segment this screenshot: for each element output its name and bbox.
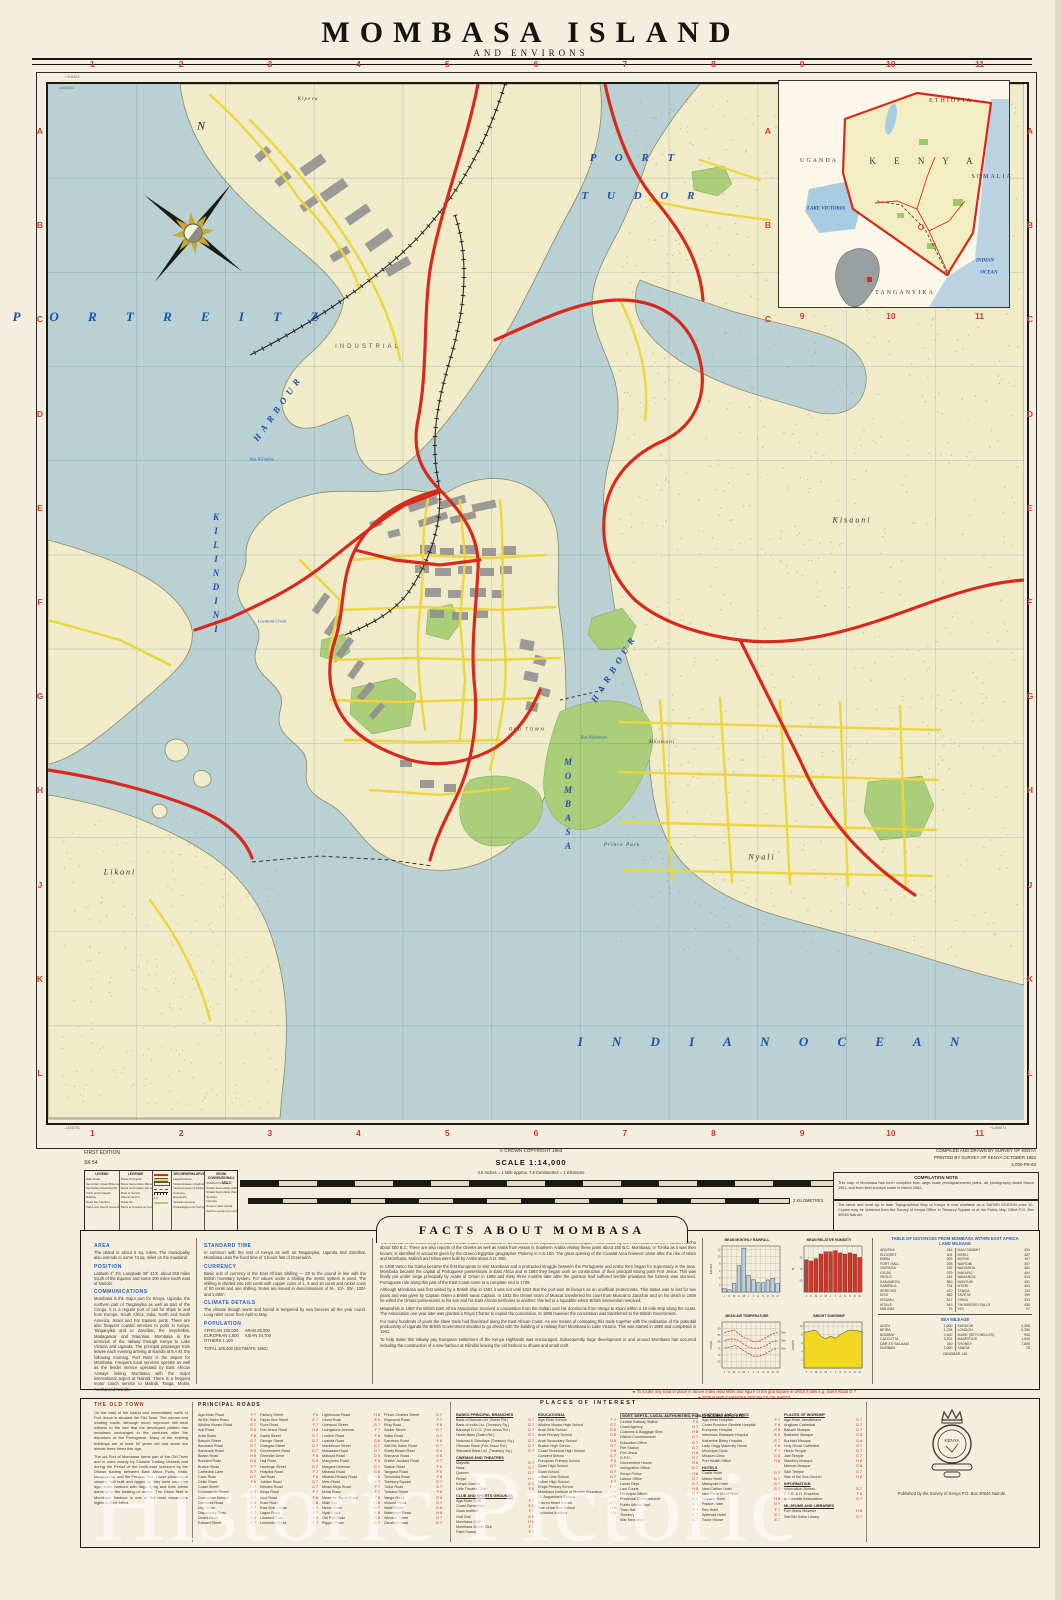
distance-column: ARUSHA244ELDORET404EMBU305FORT HALL258GA… <box>878 1248 955 1312</box>
place-grid-ref: H 8 <box>856 1475 862 1480</box>
facts-currency-body: Basic unit of currency is the East Afric… <box>204 1271 366 1297</box>
compiled-line: COMPILED AND DRAWN BY SURVEY OF KENYA <box>736 1147 1036 1154</box>
svg-text:2: 2 <box>801 1358 803 1362</box>
inset-label: UGANDA <box>800 158 838 164</box>
svg-text:D: D <box>859 1370 861 1374</box>
facts-currency-title: CURRENCY <box>204 1264 366 1270</box>
grid-letter: G <box>1027 691 1034 701</box>
svg-text:M: M <box>743 1294 746 1298</box>
population-total: TOTAL 165,400 (ESTIMATE 1962) <box>204 1346 366 1351</box>
grid-letter: B <box>37 220 43 230</box>
inset-label: OCEAN <box>980 271 997 276</box>
svg-text:S: S <box>844 1294 846 1298</box>
history-paragraph: Meanwhile in 1887 the British East Afric… <box>380 1306 696 1317</box>
grid-letter: J <box>1028 880 1033 890</box>
population-row: ASIAN 34,700 <box>245 1333 271 1338</box>
svg-text:J: J <box>753 1294 755 1298</box>
grid-number: 7 <box>622 1128 627 1138</box>
divider <box>372 1238 373 1384</box>
svg-text:A: A <box>839 1294 841 1298</box>
distance-place: MALINDI <box>880 1307 894 1312</box>
svg-text:12: 12 <box>718 1248 721 1252</box>
building-block <box>502 546 516 555</box>
history-paragraph: Although Mombasa was first visited by a … <box>380 1287 696 1303</box>
chart-title: MEAN MONTHLY RAINFALL <box>708 1238 786 1242</box>
svg-text:10: 10 <box>718 1255 721 1259</box>
grid-letter: C <box>1027 314 1033 324</box>
building-block <box>425 588 441 597</box>
compilation-note-title: COMPILATION NOTE <box>838 1175 1034 1180</box>
legend-item: Parcs et Terrains de Sports <box>121 1205 151 1210</box>
grid-coordinate: -1460001 <box>58 86 74 90</box>
scan-edge-shade <box>1055 0 1062 1600</box>
legend-header: SEGNI CONVENZIONALI <box>206 1172 236 1180</box>
svg-text:A: A <box>839 1370 841 1374</box>
svg-text:INCHES: INCHES <box>709 1264 713 1275</box>
svg-text:N: N <box>854 1294 856 1298</box>
scale-mile-label: MILE <box>222 1180 232 1185</box>
grid-letter: F <box>37 597 42 607</box>
grid-number: 3 <box>267 59 272 69</box>
grid-number: 7 <box>622 59 627 69</box>
svg-text:4: 4 <box>719 1276 721 1280</box>
chart-mean-air-temperature: MEAN AIR TEMPERATURE657075808590Mean Max… <box>708 1314 786 1390</box>
legend-symbol-rail <box>154 1192 168 1195</box>
svg-text:°FAHR.: °FAHR. <box>709 1340 713 1350</box>
grid-letter: D <box>37 409 43 419</box>
svg-text:HOURS: HOURS <box>791 1340 795 1350</box>
red-note-line: ★ FOR NAME CHANGES SEE BACK OF SHEET <box>452 1395 1036 1401</box>
svg-text:70: 70 <box>800 1267 803 1271</box>
distance-place: DURBAN <box>880 1346 895 1351</box>
grid-number: 3 <box>267 1128 272 1138</box>
building-block <box>482 548 496 556</box>
facts-history: The first real news concerning the East … <box>380 1240 696 1350</box>
history-paragraph: For many hundreds of years the slave tra… <box>380 1319 696 1335</box>
inset-label: ETHIOPIA <box>929 98 973 104</box>
legend-symbol-track <box>154 1189 168 1190</box>
grid-letter: L <box>1027 1068 1032 1078</box>
grid-number: 1 <box>90 59 95 69</box>
svg-text:8: 8 <box>801 1333 803 1337</box>
svg-text:80: 80 <box>800 1256 803 1260</box>
facts-col-left: AREA The island is about 5 sq. miles. Th… <box>94 1240 190 1392</box>
inset-label: SOMALIA <box>971 174 1012 180</box>
svg-text:M: M <box>815 1294 818 1298</box>
svg-text:KENYA: KENYA <box>945 1438 960 1443</box>
distance-row: DURBAN2,000 <box>880 1346 953 1351</box>
page-subtitle: AND ENVIRONS <box>0 48 1062 58</box>
old-town-paragraph: On the east of the Island and immediatel… <box>94 1410 188 1451</box>
index-usage-notes: ★ To locate any road or place in above i… <box>452 1389 1036 1400</box>
svg-text:N: N <box>772 1370 774 1374</box>
grid-number: 8 <box>711 59 716 69</box>
grid-letter: E <box>37 503 43 513</box>
svg-text:A: A <box>820 1370 822 1374</box>
legend-symbol <box>154 1182 171 1187</box>
scale-bar-km <box>248 1198 790 1204</box>
copyright-note: © CROWN COPYRIGHT 1963 <box>411 1148 651 1153</box>
distance-place: VOI <box>958 1307 964 1312</box>
grid-letter-inset: B <box>765 220 771 230</box>
kenya-inset-map: ETHIOPIAUGANDAK E N Y ASOMALIATANGANYIKA… <box>778 80 1010 308</box>
building-block <box>444 784 456 792</box>
safari-edition-body: The latest and most up to date Topograph… <box>838 1203 1034 1217</box>
distance-row: MALINDI75 <box>880 1307 953 1312</box>
places-section-title: HOSPITALS AND CLINICS <box>702 1413 780 1417</box>
distance-miles: 75 <box>949 1307 953 1312</box>
publisher-note: Published by the Survey of Kenya P.O. Bo… <box>868 1491 1036 1496</box>
svg-text:J: J <box>748 1370 750 1374</box>
svg-text:M: M <box>733 1294 736 1298</box>
svg-text:J: J <box>748 1294 750 1298</box>
grid-number: 1 <box>90 1128 95 1138</box>
grid-letter: L <box>37 1068 42 1078</box>
printed-line: PRINTED BY SURVEY OF KENYA OCTOBER 1963 <box>736 1154 1036 1161</box>
grid-letter-inset: C <box>765 314 771 324</box>
survey-of-kenya-crest: KENYA <box>920 1408 984 1482</box>
grid-number: 4 <box>356 59 361 69</box>
population-table: AFRICAN 100,000EUROPEAN 4,600OTHERS 1,10… <box>204 1328 366 1344</box>
grid-number: 2 <box>179 59 184 69</box>
svg-text:F: F <box>810 1370 812 1374</box>
grid-letter: B <box>1027 220 1033 230</box>
islet <box>193 770 211 787</box>
places-section-title: EDUCATIONAL <box>538 1413 616 1417</box>
svg-text:6: 6 <box>719 1269 721 1273</box>
grid-number: 10 <box>886 59 895 69</box>
legend-symbol <box>154 1201 171 1206</box>
svg-text:60: 60 <box>800 1279 803 1283</box>
svg-text:6: 6 <box>801 1341 803 1345</box>
legend-header: LÉGENDE <box>121 1172 151 1176</box>
inset-kenya-marker <box>867 277 872 282</box>
svg-text:D: D <box>777 1294 779 1298</box>
svg-text:J: J <box>753 1370 755 1374</box>
scale-bar-miles <box>240 1180 846 1187</box>
grid-letter: F <box>1027 597 1032 607</box>
svg-text:4: 4 <box>801 1349 803 1353</box>
grid-letter: E <box>1027 503 1033 513</box>
divider <box>866 1402 867 1542</box>
grid-number-inset: 9 <box>800 311 805 321</box>
svg-text:85: 85 <box>718 1333 721 1337</box>
grid-letter: C <box>37 314 43 324</box>
svg-text:J: J <box>835 1370 837 1374</box>
legend-item: Parks and Sports Grounds <box>86 1205 118 1210</box>
history-paragraph: The first real news concerning the East … <box>380 1240 696 1261</box>
facts-time-body: In common with the rest of Kenya as well… <box>204 1250 366 1261</box>
svg-text:Mean: Mean <box>782 1339 787 1342</box>
svg-text:F: F <box>728 1294 730 1298</box>
chart-title: MEAN AIR TEMPERATURE <box>708 1314 786 1318</box>
place-grid-ref: G 7 <box>856 1497 862 1502</box>
svg-text:10: 10 <box>800 1324 803 1328</box>
building-block <box>480 568 494 576</box>
facts-banner: FACTS ABOUT MOMBASA <box>376 1216 688 1243</box>
edition-note: FIRST EDITION <box>84 1150 120 1156</box>
svg-text:A: A <box>738 1294 740 1298</box>
grid-number: 6 <box>534 1128 539 1138</box>
svg-text:S: S <box>762 1294 764 1298</box>
compilation-note-body: This map of Mombasa has been compiled fr… <box>838 1181 1034 1191</box>
svg-text:A: A <box>757 1294 759 1298</box>
facts-position-body: Latitude 4° 3'S. Longitude 39° 41'E. abo… <box>94 1271 190 1287</box>
inset-label: K E N Y A <box>869 156 980 166</box>
building-block <box>435 568 451 576</box>
page-title: MOMBASA ISLAND <box>0 16 1062 50</box>
grid-number: 8 <box>711 1128 716 1138</box>
inset-kenya <box>843 93 991 275</box>
grid-number: 5 <box>445 59 450 69</box>
distance-miles: 97 <box>1026 1307 1030 1312</box>
svg-text:O: O <box>849 1294 851 1298</box>
inset-label: LAKE VICTORIA <box>807 207 845 212</box>
svg-text:M: M <box>825 1294 828 1298</box>
grid-number: 5 <box>445 1128 450 1138</box>
svg-text:J: J <box>835 1294 837 1298</box>
survey-crest-cell: KENYA Published by the Survey of Kenya P… <box>868 1402 1036 1496</box>
svg-text:J: J <box>806 1294 808 1298</box>
svg-text:O: O <box>849 1370 851 1374</box>
grid-letter: J <box>38 880 43 890</box>
old-town-title: THE OLD TOWN <box>94 1402 188 1408</box>
facts-communications-title: COMMUNICATIONS <box>94 1289 190 1295</box>
legend-item: Parkanlagen und Sportplätze <box>173 1205 203 1210</box>
print-code: 5,000-FR-63 <box>736 1161 1036 1168</box>
legend-header: LEGEND <box>86 1172 118 1176</box>
grid-letter-inset: A <box>765 126 771 136</box>
svg-text:A: A <box>820 1294 822 1298</box>
places-of-interest-title: PLACES OF INTEREST <box>540 1400 637 1406</box>
legend-item: Parchi e terreni per sports <box>206 1209 236 1214</box>
grid-letter: K <box>37 974 43 984</box>
grid-letter: D <box>1027 409 1033 419</box>
facts-col-mid: STANDARD TIME In common with the rest of… <box>204 1240 366 1351</box>
svg-text:N: N <box>854 1370 856 1374</box>
facts-population-title: POPULATION <box>204 1321 366 1327</box>
svg-text:J: J <box>830 1370 832 1374</box>
grid-letter: K <box>1027 974 1033 984</box>
svg-text:2: 2 <box>719 1283 721 1287</box>
compilation-note: COMPILATION NOTE This map of Mombasa has… <box>833 1172 1039 1200</box>
distance-tables: TABLE OF DISTANCES FROM MOMBASA WITHIN E… <box>878 1236 1032 1356</box>
svg-text:M: M <box>733 1370 736 1374</box>
facts-position-title: POSITION <box>94 1264 190 1270</box>
svg-text:M: M <box>743 1370 746 1374</box>
facts-time-title: STANDARD TIME <box>204 1243 366 1249</box>
population-column: ARAB 25,000ASIAN 34,700 <box>245 1328 271 1344</box>
facts-climate-title: CLIMATE DETAILS <box>204 1300 366 1306</box>
principal-roads-title: PRINCIPAL ROADS <box>198 1402 261 1408</box>
grid-number: 9 <box>800 59 805 69</box>
svg-text:F: F <box>810 1294 812 1298</box>
grid-coordinate: +1459674 <box>990 1126 1007 1130</box>
population-row: OTHERS 1,100 <box>204 1338 239 1343</box>
history-paragraph: To help make this railway pay European s… <box>380 1337 696 1348</box>
chart-title: BRIGHT SUNSHINE <box>790 1314 868 1318</box>
building-block <box>460 545 476 554</box>
svg-text:S: S <box>762 1370 764 1374</box>
imprint-credits: COMPILED AND DRAWN BY SURVEY OF KENYA PR… <box>736 1147 1036 1168</box>
legend-symbol-green <box>154 1202 168 1204</box>
svg-text:J: J <box>806 1370 808 1374</box>
chart-bright-sunshine: BRIGHT SUNSHINE246810JFMAMJJASONDHOURS <box>790 1314 868 1390</box>
grid-number: 11 <box>975 59 984 69</box>
facts-area-body: The island is about 5 sq. miles. The mun… <box>94 1250 190 1261</box>
map-sheet: MOMBASA ISLAND AND ENVIRONS <box>0 0 1062 1600</box>
svg-text:N: N <box>772 1294 774 1298</box>
svg-text:J: J <box>724 1294 726 1298</box>
grid-number: 10 <box>886 1128 895 1138</box>
building-block <box>476 610 488 618</box>
facts-area-title: AREA <box>94 1243 190 1249</box>
svg-text:80: 80 <box>718 1340 721 1344</box>
scale-km-right-label: 2 KILOMETRES <box>793 1198 823 1203</box>
svg-text:65: 65 <box>718 1359 721 1363</box>
grid-number: 6 <box>534 59 539 69</box>
building-block <box>448 590 462 598</box>
secondary-road <box>330 658 560 660</box>
svg-text:J: J <box>724 1370 726 1374</box>
zanzibar-row: ZANZIBAR 130 <box>878 1352 1032 1356</box>
grid-number: 4 <box>356 1128 361 1138</box>
grid-letter: H <box>37 785 43 795</box>
islet <box>152 804 167 818</box>
distance-column: ADEN1,600BEIRA1,234BOMBAY2,400CALCUTTA3,… <box>878 1324 955 1351</box>
watermark: Historic Pictoric <box>92 1448 797 1565</box>
facts-climate-body: The climate though warm and humid is tem… <box>204 1307 366 1318</box>
distance-miles: 78 <box>1026 1346 1030 1351</box>
svg-text:75: 75 <box>718 1346 721 1350</box>
grid-number: 11 <box>975 1128 984 1138</box>
svg-text:O: O <box>767 1370 769 1374</box>
scale-ratio-note: 4.5 Inches = 1 Mile approx. 7.5 Centimet… <box>351 1170 711 1175</box>
divider <box>196 1238 197 1384</box>
inset-label: INDIAN <box>976 259 994 264</box>
grid-letter: A <box>1027 126 1033 136</box>
grid-number-inset: 10 <box>886 311 895 321</box>
sheet-code: SK 54 <box>84 1160 98 1166</box>
svg-text:M: M <box>825 1370 828 1374</box>
grid-coordinate: +376303 <box>65 75 80 79</box>
svg-text:F: F <box>728 1370 730 1374</box>
svg-text:D: D <box>859 1294 861 1298</box>
svg-text:M: M <box>815 1370 818 1374</box>
inset-label: TANGANYIKA <box>875 290 935 296</box>
chart-mean-monthly-rainfall: MEAN MONTHLY RAINFALL24681012JFMAMJJASON… <box>708 1238 786 1314</box>
distance-place: TANGA <box>958 1346 970 1351</box>
grid-letter: H <box>1027 785 1033 795</box>
population-column: AFRICAN 100,000EUROPEAN 4,600OTHERS 1,10… <box>204 1328 239 1344</box>
svg-text:Mean Min.: Mean Min. <box>782 1347 787 1350</box>
legend-header: ZEICHENERKLÄRUNG <box>173 1172 203 1176</box>
chart-mean-relative-humidity: MEAN RELATIVE HUMIDITY607080JFMAMJJASOND… <box>790 1238 868 1314</box>
distance-row: TANGA78 <box>958 1346 1031 1351</box>
grid-number-inset: 11 <box>975 311 984 321</box>
distance-column: KARACHI2,358LONDON6,250MAHE (SEYCHELLES)… <box>955 1324 1033 1351</box>
legend-symbol-earth <box>154 1182 170 1186</box>
scale-title: SCALE 1:14,000 <box>411 1158 651 1167</box>
svg-text:70: 70 <box>718 1353 721 1357</box>
svg-text:Mean Max.: Mean Max. <box>782 1332 787 1335</box>
grid-number: 9 <box>800 1128 805 1138</box>
places-section-title: GOVT. DEPTS., LOCAL AUTHORITIES, PUBLIC … <box>620 1413 698 1419</box>
grid-letter: A <box>37 126 43 136</box>
sea-mileage-title: SEA MILEAGE <box>878 1317 1032 1322</box>
distance-miles: 2,000 <box>944 1346 953 1351</box>
chart-title: MEAN RELATIVE HUMIDITY <box>790 1238 868 1242</box>
legend-symbol-red <box>154 1174 168 1176</box>
legend-symbol-num: 2 6 <box>154 1196 168 1200</box>
places-section-title: PLACES OF WORSHIP <box>784 1413 862 1417</box>
facts-communications-body: Mombasa is the major port for Kenya, Uga… <box>94 1296 190 1391</box>
islet <box>165 739 188 761</box>
grid-letter: G <box>37 691 44 701</box>
divider <box>872 1238 873 1384</box>
svg-text:8: 8 <box>719 1262 721 1266</box>
legend-symbol-yellow <box>154 1178 168 1182</box>
distance-row: VOI97 <box>958 1307 1031 1312</box>
inset-africa-silhouette <box>836 249 880 307</box>
divider <box>702 1238 703 1384</box>
distance-column: MAU SUMMIT434MERU487MOSHI197NAIROBI307NA… <box>955 1248 1033 1312</box>
legend-item: Numero della strada <box>206 1204 236 1209</box>
grid-coordinate: -1455751 <box>64 1126 80 1130</box>
place-grid-ref: G 7 <box>856 1515 862 1520</box>
svg-text:A: A <box>757 1370 759 1374</box>
land-mileage-title: LAND MILEAGE <box>878 1241 1032 1246</box>
grid-number: 2 <box>179 1128 184 1138</box>
svg-text:D: D <box>777 1370 779 1374</box>
svg-text:%: % <box>791 1267 795 1270</box>
building-block <box>420 780 434 788</box>
history-paragraph: In 1498 Vasco Da Gama became the first E… <box>380 1264 696 1285</box>
svg-text:A: A <box>738 1370 740 1374</box>
facts-banner-title: FACTS ABOUT MOMBASA <box>419 1223 645 1237</box>
svg-text:90: 90 <box>718 1327 721 1331</box>
building-block <box>430 610 444 618</box>
places-section-title: BANKS PRINCIPAL BRANCHES <box>456 1413 534 1417</box>
svg-text:O: O <box>767 1294 769 1298</box>
safari-edition-note: The latest and most up to date Topograph… <box>833 1200 1039 1234</box>
svg-text:S: S <box>844 1370 846 1374</box>
svg-text:J: J <box>830 1294 832 1298</box>
